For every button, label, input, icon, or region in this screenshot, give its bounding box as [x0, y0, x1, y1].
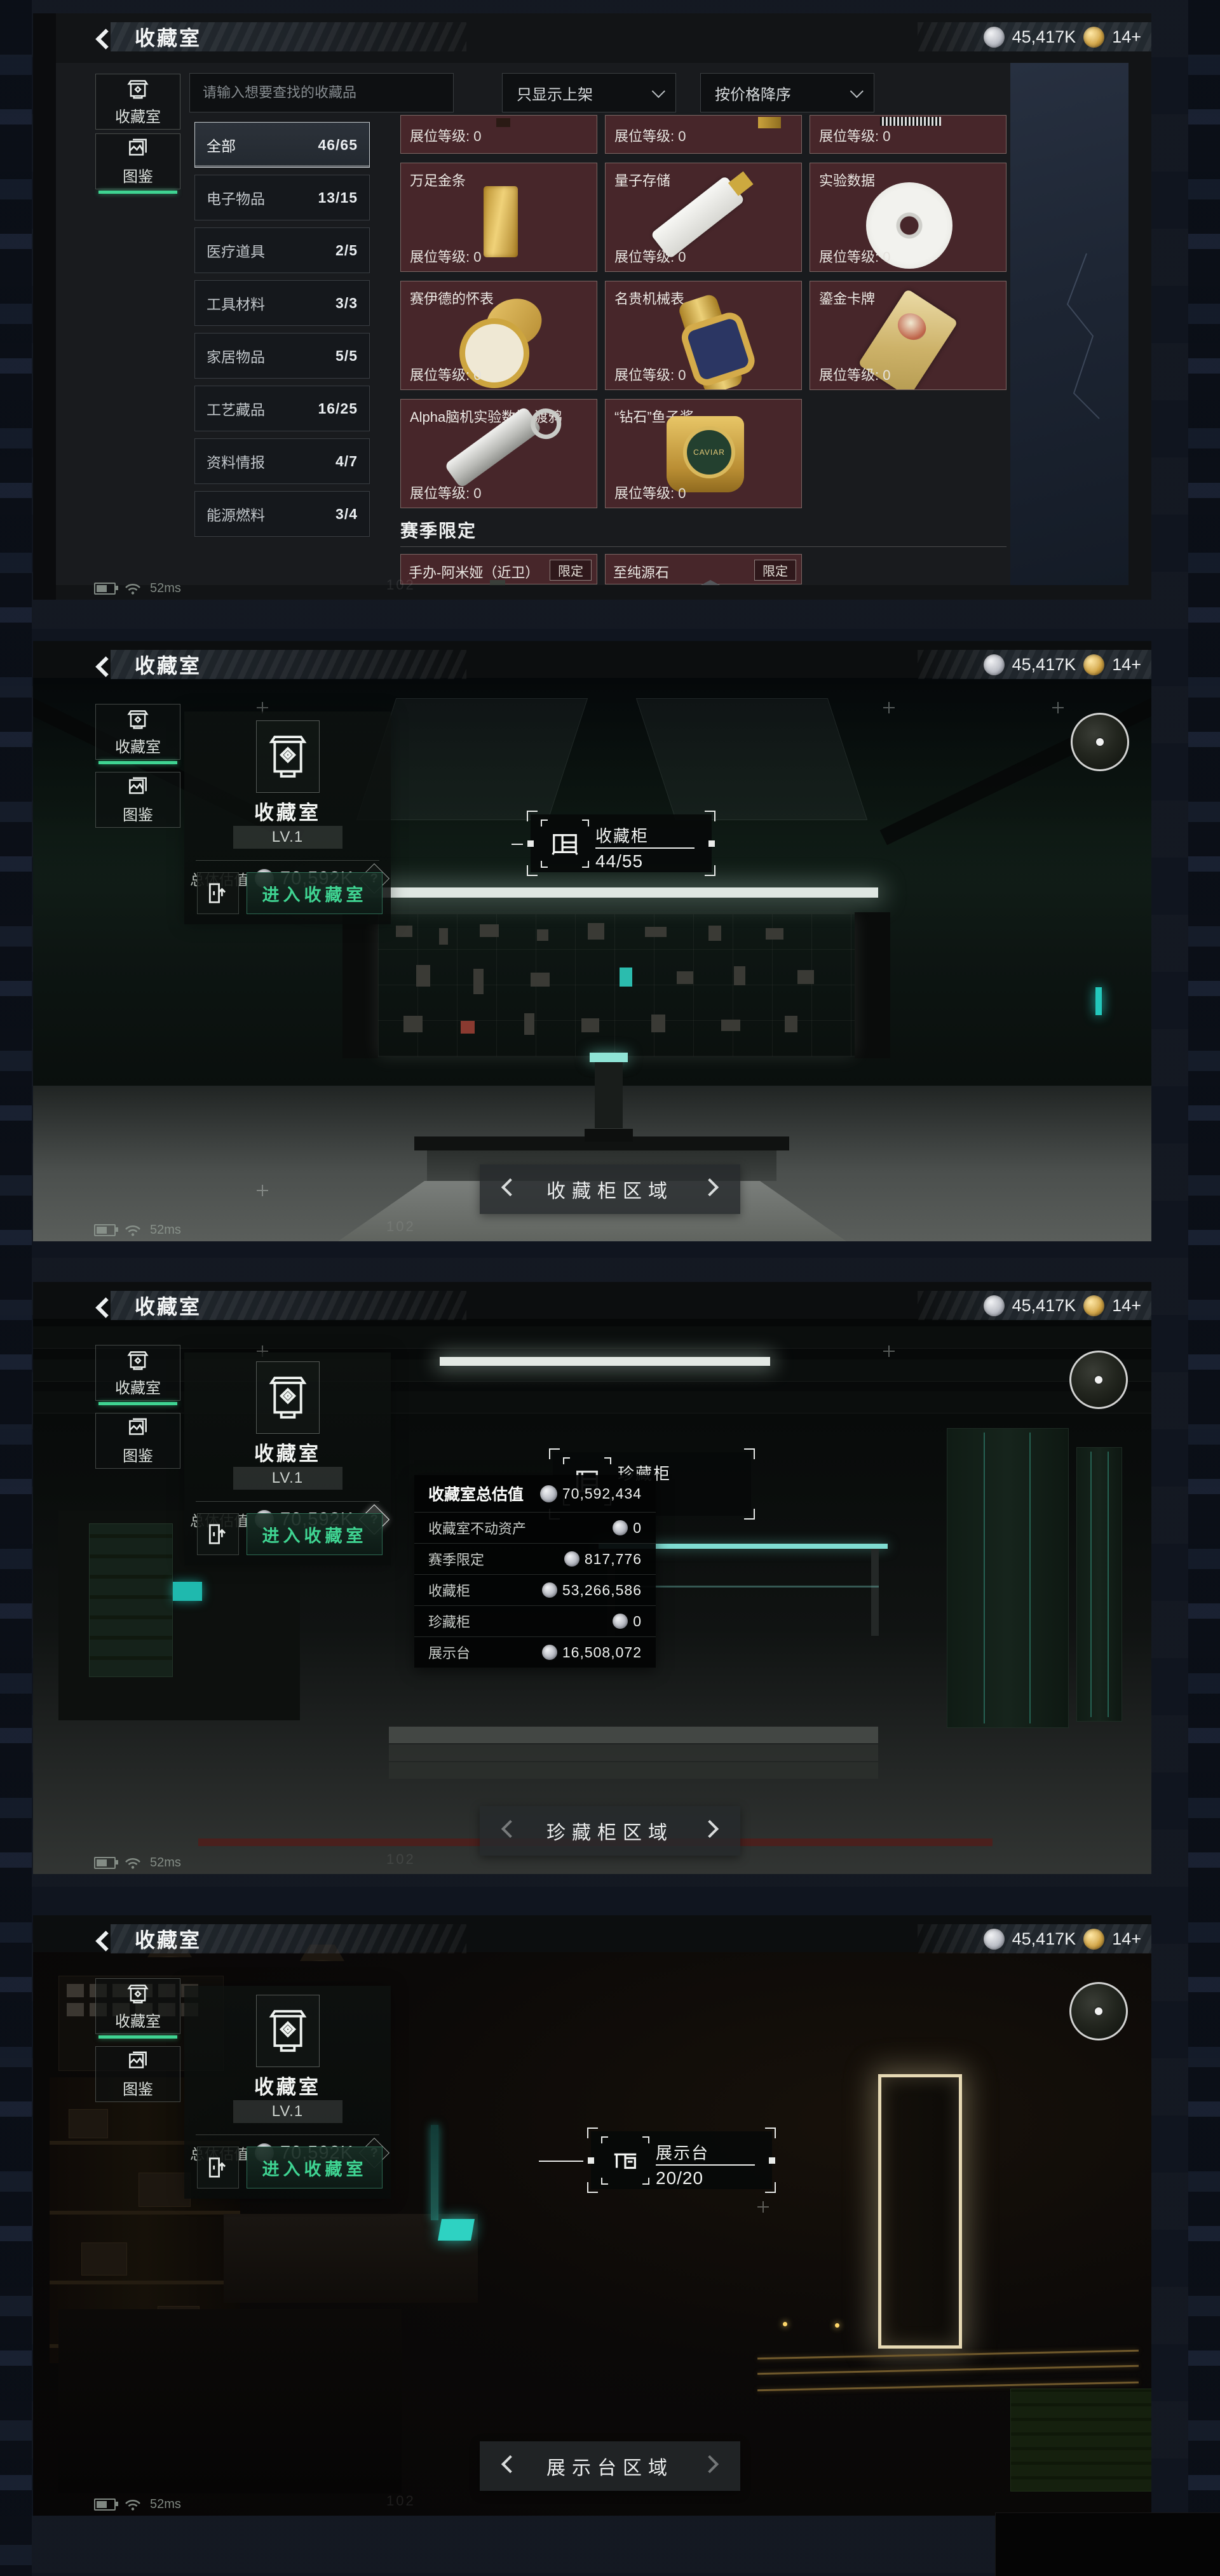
tab-label: 收藏室 [115, 2009, 161, 2031]
search-input[interactable] [189, 73, 454, 112]
category-count: 5/5 [335, 347, 358, 365]
connector-node [527, 840, 534, 847]
money-amount: 45,417K [1012, 1296, 1076, 1316]
enter-door-icon [206, 881, 230, 905]
category-label: 资料情报 [207, 450, 265, 472]
ping-value: 52ms [150, 1223, 181, 1237]
wifi-icon [125, 583, 141, 595]
category-craft[interactable]: 工艺藏品16/25 [194, 386, 370, 431]
catalog-book-icon [126, 1416, 150, 1440]
battery-icon [94, 1857, 116, 1869]
item-name: 实验数据 [819, 170, 875, 190]
scene-column [342, 912, 378, 1058]
item-name: 万足金条 [410, 170, 466, 190]
gold-amount: 14+ [1112, 1929, 1141, 1949]
breakdown-label: 展示台 [428, 1642, 470, 1662]
money-amount: 45,417K [1012, 1929, 1076, 1949]
item-card-gold-bar[interactable]: 万足金条 展位等级: 0 [400, 163, 597, 272]
room-title: 收藏室 [184, 2071, 391, 2100]
minimap-compass [1069, 1982, 1128, 2040]
scene-glass-panel [636, 698, 867, 820]
category-intel[interactable]: 资料情报4/7 [194, 438, 370, 484]
manage-room-button[interactable] [197, 872, 239, 914]
page-title-text: 收藏室 [135, 650, 201, 679]
breakdown-value: 0 [633, 1520, 642, 1537]
item-card-alpha-data[interactable]: Alpha脑机实验数据-渡鸦 展位等级: 0 [400, 399, 597, 508]
category-label: 工具材料 [207, 292, 265, 314]
screenshot-treasure-area: 收藏室 45,417K 14+ 收藏室 图鉴 收藏室 LV.1 总体估值 [33, 1282, 1151, 1874]
header: 收藏室 45,417K 14+ [33, 13, 1151, 63]
display-case-icon [126, 707, 150, 731]
display-stand-tooltip[interactable]: 展示台 20/20 [591, 2131, 772, 2189]
area-nav-treasure[interactable]: 珍藏柜区域 [480, 1806, 740, 1856]
currency-bar: 45,417K 14+ [918, 22, 1151, 51]
silver-coin-icon [984, 654, 1005, 675]
item-card-luxury-watch[interactable]: 名贵机械表 展位等级: 0 [605, 281, 802, 390]
ping-value: 52ms [150, 2497, 181, 2512]
item-name: 至纯源石 [613, 562, 669, 582]
scene-cabinet [947, 1428, 1069, 1728]
breakdown-value: 0 [633, 1613, 642, 1630]
category-tools[interactable]: 工具材料3/3 [194, 280, 370, 326]
room-info-card: 收藏室 LV.1 总体估值 70,592K ? 进入收藏室 [184, 711, 391, 924]
display-case-icon [126, 1348, 150, 1372]
breakdown-value: 53,266,586 [562, 1582, 642, 1599]
watermark: 102 [386, 1218, 416, 1235]
connector-node [588, 2157, 594, 2164]
scene-pedestal [585, 1053, 633, 1142]
action-row: 进入收藏室 [197, 1513, 383, 1555]
category-all[interactable]: 全部46/65 [194, 122, 370, 168]
gold-amount: 14+ [1112, 27, 1141, 47]
enter-room-button[interactable]: 进入收藏室 [247, 872, 383, 914]
room-level-badge: LV.1 [233, 2100, 342, 2123]
caviar-tin-icon: CAVIAR [667, 416, 744, 492]
divider [196, 860, 379, 861]
next-area-arrow[interactable] [701, 1820, 719, 1838]
divider [656, 2164, 755, 2166]
booth-level: 展位等级: 0 [614, 125, 686, 145]
category-energy[interactable]: 能源燃料3/4 [194, 491, 370, 537]
minimap-compass [1071, 713, 1129, 771]
display-case-icon [268, 1374, 308, 1421]
season-item-originium[interactable]: 至纯源石 限定 [605, 554, 802, 584]
display-stand-icon [611, 2146, 640, 2175]
silver-coin-icon [984, 1929, 1005, 1950]
tab-collection-room[interactable]: 收藏室 [95, 74, 180, 130]
network-status: 52ms [94, 581, 181, 596]
scene-dark-machinery [58, 2309, 402, 2493]
breakdown-row: 赛季限定 817,776 [414, 1543, 656, 1574]
area-nav-display-stand[interactable]: 展示台区域 [480, 2441, 740, 2491]
display-stand-icon-frame [605, 2140, 646, 2181]
page-title: 收藏室 [111, 1291, 466, 1320]
item-card-experiment-data[interactable]: 实验数据 展位等级: 0 [810, 163, 1006, 272]
item-card-partial[interactable]: 展位等级: 0 [400, 115, 597, 154]
prev-area-arrow[interactable] [501, 1178, 519, 1196]
left-edge-pattern [0, 0, 32, 2576]
limited-tag: 限定 [550, 560, 592, 581]
battery-icon [94, 583, 116, 595]
next-area-arrow[interactable] [701, 2455, 719, 2473]
page-background: 收藏室 45,417K 14+ 收藏室 图鉴 只显示上架 按价格降序 全部46/… [0, 0, 1220, 2576]
item-name: 名贵机械表 [614, 288, 684, 308]
category-household[interactable]: 家居物品5/5 [194, 333, 370, 379]
wifi-icon [125, 2498, 141, 2511]
room-icon-frame [256, 1995, 320, 2067]
scene-teal-light-strip [431, 2125, 438, 2220]
panel-left-edge [33, 13, 56, 600]
area-nav-label: 展示台区域 [546, 2452, 674, 2480]
grid-cross-mark [883, 1345, 895, 1357]
prev-area-arrow[interactable] [501, 1820, 519, 1838]
gold-coin-icon [1083, 654, 1104, 675]
next-area-arrow[interactable] [701, 1178, 719, 1196]
bottom-right-overlay [995, 2512, 1220, 2576]
tooltip-count: 20/20 [656, 2168, 703, 2188]
item-fragment [758, 117, 781, 128]
category-count: 46/65 [318, 137, 358, 154]
chevron-down-icon [850, 84, 864, 98]
silver-coin-icon [613, 1520, 628, 1535]
cabinet-tooltip[interactable]: 收藏柜 44/55 [531, 814, 712, 872]
room-icon-frame [256, 720, 320, 793]
item-name: 量子存储 [614, 170, 670, 190]
gold-amount: 14+ [1112, 1296, 1141, 1316]
wifi-icon [125, 1857, 141, 1870]
item-fragment [496, 118, 510, 127]
booth-level: 展位等级: 0 [819, 125, 890, 145]
screenshot-cabinet-area: 收藏室 45,417K 14+ 收藏室 图鉴 收藏室 LV.1 总体估值 [33, 641, 1151, 1241]
silver-coin-icon [984, 27, 1005, 48]
connector-node [769, 2157, 775, 2164]
catalog-book-icon [126, 2049, 150, 2074]
item-fragment [880, 117, 941, 126]
scene-column [855, 912, 890, 1058]
room-level-badge: LV.1 [233, 1467, 342, 1490]
gold-bar-icon [484, 186, 518, 257]
tab-label: 收藏室 [115, 104, 161, 126]
room-level-badge: LV.1 [233, 826, 342, 849]
header: 收藏室 45,417K 14+ [33, 641, 1151, 691]
connector-line [539, 2161, 583, 2162]
room-icon-frame [256, 1361, 320, 1434]
booth-level: 展位等级: 0 [614, 364, 686, 384]
tab-catalog[interactable]: 图鉴 [95, 1413, 180, 1469]
item-card-quantum-storage[interactable]: 量子存储 展位等级: 0 [605, 163, 802, 272]
connector-line [512, 844, 523, 845]
breakdown-row: 展示台 16,508,072 [414, 1636, 656, 1668]
item-name: 手办-阿米娅（近卫） [409, 562, 539, 582]
tab-catalog[interactable]: 图鉴 [95, 133, 180, 189]
network-status: 52ms [94, 2497, 181, 2512]
area-nav-label: 收藏柜区域 [546, 1175, 674, 1203]
category-count: 13/15 [318, 189, 358, 206]
network-status: 52ms [94, 1856, 181, 1870]
silver-coin-icon [542, 1645, 557, 1660]
battery-icon [94, 1224, 116, 1236]
scene-steps [389, 1727, 878, 1781]
category-label: 家居物品 [207, 345, 265, 367]
breakdown-label: 珍藏柜 [428, 1611, 470, 1631]
breakdown-label: 赛季限定 [428, 1549, 484, 1569]
grid-cross-mark [257, 1185, 268, 1196]
page-title: 收藏室 [111, 650, 466, 679]
area-nav-label: 珍藏柜区域 [546, 1817, 674, 1845]
screenshot-display-stand-area: 收藏室 45,417K 14+ 收藏室 图鉴 收藏室 LV.1 总体估值 [33, 1915, 1151, 2516]
scene-green-crate [1010, 2389, 1151, 2492]
room-title: 收藏室 [184, 1438, 391, 1466]
scene-cyan-light [1095, 987, 1102, 1015]
minimap-compass [1069, 1351, 1128, 1409]
tab-collection-room[interactable]: 收藏室 [95, 1978, 180, 2034]
enter-door-icon [206, 1522, 230, 1546]
manage-room-button[interactable] [197, 1513, 239, 1555]
money-amount: 45,417K [1012, 27, 1076, 47]
category-count: 4/7 [335, 453, 358, 470]
caviar-label: CAVIAR [683, 426, 735, 478]
collection-wall [378, 914, 855, 1056]
breakdown-row: 收藏室不动资产 0 [414, 1512, 656, 1543]
crack-line [1067, 253, 1099, 419]
category-electronics[interactable]: 电子物品13/15 [194, 175, 370, 220]
scene-ceiling-light [306, 887, 878, 898]
gold-coin-icon [1083, 27, 1104, 48]
chevron-down-icon [652, 84, 665, 98]
watermark: 102 [386, 1851, 416, 1868]
tab-label: 收藏室 [115, 734, 161, 757]
tab-label: 图鉴 [123, 802, 153, 825]
category-count: 3/4 [335, 506, 358, 523]
scene-locker [89, 1523, 173, 1677]
tab-catalog[interactable]: 图鉴 [95, 2046, 180, 2102]
grid-cross-mark [757, 2201, 769, 2213]
tab-label: 图鉴 [123, 2077, 153, 2099]
page-title-text: 收藏室 [135, 22, 201, 51]
scene-monitor-glow [438, 2219, 475, 2241]
breakdown-value: 817,776 [585, 1551, 642, 1568]
season-limited-header: 赛季限定 [400, 517, 477, 543]
breakdown-label: 收藏室不动资产 [428, 1518, 526, 1538]
battery-icon [94, 2498, 116, 2511]
silver-coin-icon [540, 1485, 557, 1502]
catalog-book-icon [126, 137, 150, 161]
catalog-book-icon [126, 775, 150, 799]
connector-node [708, 840, 715, 847]
category-label: 医疗道具 [207, 239, 265, 261]
wifi-icon [125, 1224, 141, 1237]
tab-label: 图鉴 [123, 164, 153, 186]
booth-level: 展位等级: 0 [819, 246, 890, 266]
network-status: 52ms [94, 1223, 181, 1237]
display-case-icon [268, 2007, 308, 2054]
watermark: 102 [386, 577, 416, 593]
tooltip-title: 展示台 [656, 2140, 709, 2164]
sort-value: 按价格降序 [715, 82, 791, 104]
room-info-card: 收藏室 LV.1 总体估值 70,592K ? 进入收藏室 [184, 1986, 391, 2199]
breakdown-row: 收藏柜 53,266,586 [414, 1574, 656, 1605]
filter-listed-dropdown[interactable]: 只显示上架 [502, 73, 676, 112]
scene-screen [173, 1582, 202, 1601]
category-label: 能源燃料 [207, 503, 265, 525]
enter-room-button[interactable]: 进入收藏室 [247, 2147, 383, 2188]
category-count: 3/3 [335, 295, 358, 312]
silver-coin-icon [984, 1295, 1005, 1316]
room-title: 收藏室 [184, 797, 391, 825]
currency-bar: 45,417K 14+ [918, 650, 1151, 679]
scene-cabinet [1076, 1447, 1122, 1722]
grid-cross-mark [1052, 702, 1064, 713]
item-card-pocket-watch[interactable]: 赛伊德的怀表 展位等级: 0 [400, 281, 597, 390]
value-breakdown-panel: 收藏室总估值 70,592,434 收藏室不动资产 0 赛季限定 817,776… [414, 1475, 656, 1668]
item-fragment [490, 580, 505, 585]
cabinet-icon [550, 829, 579, 858]
enter-room-button[interactable]: 进入收藏室 [247, 1513, 383, 1555]
prev-area-arrow[interactable] [501, 2455, 519, 2473]
display-case-icon [126, 77, 150, 101]
grid-cross-mark [883, 702, 895, 713]
scene-light-dot [835, 2323, 839, 2328]
tab-collection-room[interactable]: 收藏室 [95, 704, 180, 760]
sort-dropdown[interactable]: 按价格降序 [700, 73, 874, 112]
booth-level: 展位等级: 0 [614, 246, 686, 266]
header: 收藏室 45,417K 14+ [33, 1282, 1151, 1332]
breakdown-value: 16,508,072 [562, 1644, 642, 1661]
tooltip-count: 44/55 [595, 851, 643, 872]
divider [196, 2134, 379, 2135]
divider [196, 1501, 379, 1502]
page-title: 收藏室 [111, 1924, 466, 1953]
booth-level: 展位等级: 0 [614, 482, 686, 502]
enter-door-icon [206, 2155, 230, 2180]
gold-amount: 14+ [1112, 655, 1141, 675]
item-card-partial[interactable]: 展位等级: 0 [810, 115, 1006, 154]
cabinet-icon-frame [545, 823, 585, 864]
ping-value: 52ms [150, 581, 181, 596]
breakdown-total-row: 收藏室总估值 70,592,434 [414, 1475, 656, 1512]
right-edge-pattern [1188, 0, 1220, 2576]
gold-coin-icon [1083, 1929, 1104, 1950]
booth-level: 展位等级: 0 [819, 364, 890, 384]
item-card-partial[interactable]: 展位等级: 0 [605, 115, 802, 154]
divider [595, 847, 695, 849]
category-count: 16/25 [318, 400, 358, 417]
item-card-gilded-card[interactable]: 鎏金卡牌 展位等级: 0 [810, 281, 1006, 390]
breakdown-label: 收藏室总估值 [428, 1482, 524, 1505]
gold-coin-icon [1083, 1295, 1104, 1316]
booth-level: 展位等级: 0 [410, 125, 481, 145]
item-card-caviar[interactable]: “钻石”鱼子酱 CAVIAR 展位等级: 0 [605, 399, 802, 508]
category-label: 电子物品 [207, 187, 265, 208]
scene-lit-doorway [878, 2074, 962, 2349]
scene-light-dot [783, 2322, 787, 2326]
filter-listed-value: 只显示上架 [517, 82, 593, 104]
category-count: 2/5 [335, 242, 358, 259]
category-label: 全部 [207, 134, 236, 156]
booth-level: 展位等级: 0 [410, 246, 481, 266]
page-title-text: 收藏室 [135, 1924, 201, 1953]
tab-label: 图鉴 [123, 1443, 153, 1466]
manage-room-button[interactable] [197, 2147, 239, 2188]
room-info-card: 收藏室 LV.1 总体估值 70,592K ? 进入收藏室 [184, 1352, 391, 1565]
limited-tag: 限定 [754, 560, 796, 581]
tab-catalog[interactable]: 图鉴 [95, 772, 180, 828]
decorative-art-zone [1010, 63, 1128, 585]
category-medical[interactable]: 医疗道具2/5 [194, 227, 370, 273]
header: 收藏室 45,417K 14+ [33, 1915, 1151, 1965]
tooltip-title: 收藏柜 [595, 823, 649, 847]
breakdown-label: 收藏柜 [428, 1580, 470, 1600]
silver-coin-icon [564, 1551, 579, 1567]
category-label: 工艺藏品 [207, 398, 265, 419]
page-title: 收藏室 [111, 22, 466, 51]
divider [400, 546, 1006, 547]
screenshot-catalog: 收藏室 45,417K 14+ 收藏室 图鉴 只显示上架 按价格降序 全部46/… [33, 13, 1151, 600]
tab-label: 收藏室 [115, 1375, 161, 1398]
action-row: 进入收藏室 [197, 872, 383, 914]
tab-collection-room[interactable]: 收藏室 [95, 1345, 180, 1401]
season-item-amiya-figure[interactable]: 手办-阿米娅（近卫） 限定 [400, 554, 597, 584]
money-amount: 45,417K [1012, 655, 1076, 675]
currency-bar: 45,417K 14+ [918, 1291, 1151, 1320]
silver-coin-icon [542, 1582, 557, 1598]
scene-ceiling-light [440, 1357, 770, 1366]
watermark: 102 [386, 2493, 416, 2509]
booth-level: 展位等级: 0 [410, 364, 481, 384]
area-nav-cabinet[interactable]: 收藏柜区域 [480, 1164, 740, 1214]
item-fragment [701, 580, 720, 585]
item-name: 鎏金卡牌 [819, 288, 875, 308]
currency-bar: 45,417K 14+ [918, 1924, 1151, 1953]
ping-value: 52ms [150, 1856, 181, 1870]
display-case-icon [268, 733, 308, 780]
action-row: 进入收藏室 [197, 2147, 383, 2188]
display-case-icon [126, 1981, 150, 2006]
scene-glass-panel [356, 698, 588, 820]
breakdown-row: 珍藏柜 0 [414, 1605, 656, 1636]
booth-level: 展位等级: 0 [410, 482, 481, 502]
breakdown-value: 70,592,434 [562, 1485, 642, 1502]
page-title-text: 收藏室 [135, 1291, 201, 1320]
silver-coin-icon [613, 1614, 628, 1629]
